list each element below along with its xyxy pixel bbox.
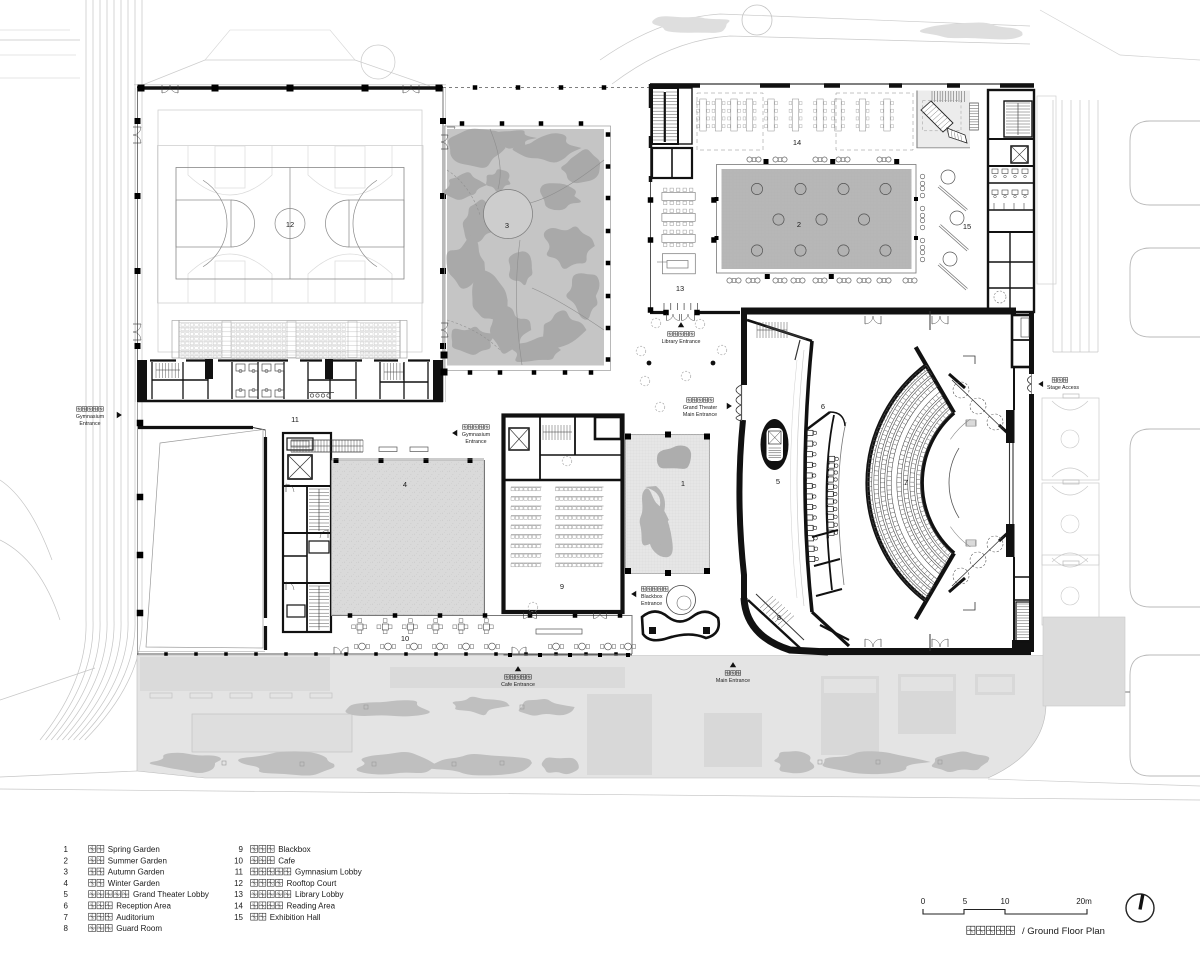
svg-text:13: 13 [234, 890, 243, 899]
svg-text:Gymnasium Lobby: Gymnasium Lobby [295, 868, 362, 877]
svg-text:6: 6 [64, 902, 69, 911]
svg-text:11: 11 [291, 415, 299, 424]
svg-text:Library Entrance: Library Entrance [662, 339, 701, 345]
svg-text:4: 4 [64, 879, 69, 888]
svg-text:Autumn Garden: Autumn Garden [108, 868, 164, 877]
svg-text:Entrance: Entrance [465, 439, 486, 445]
svg-text:14: 14 [793, 138, 801, 147]
svg-text:Main Entrance: Main Entrance [683, 412, 717, 418]
svg-text:Exhibition Hall: Exhibition Hall [270, 913, 321, 922]
svg-text:7: 7 [904, 478, 908, 487]
svg-text:Blackbox: Blackbox [278, 845, 310, 854]
svg-text:10: 10 [1001, 897, 1010, 906]
svg-text:/ Ground Floor Plan: / Ground Floor Plan [1022, 926, 1105, 937]
svg-text:10: 10 [401, 634, 409, 643]
svg-text:Entrance: Entrance [79, 421, 100, 427]
svg-text:Guard Room: Guard Room [116, 924, 162, 933]
svg-text:11: 11 [235, 868, 244, 877]
svg-text:Spring Garden: Spring Garden [108, 845, 160, 854]
svg-text:Auditorium: Auditorium [116, 913, 155, 922]
svg-text:2: 2 [64, 856, 69, 865]
svg-text:6: 6 [821, 402, 825, 411]
svg-text:3: 3 [505, 221, 509, 230]
svg-text:8: 8 [64, 924, 69, 933]
svg-text:Library Lobby: Library Lobby [295, 890, 343, 899]
svg-text:1: 1 [681, 479, 685, 488]
svg-text:Gymnasium: Gymnasium [462, 432, 491, 438]
svg-text:4: 4 [403, 480, 407, 489]
svg-text:Rooftop Court: Rooftop Court [287, 879, 338, 888]
svg-text:15: 15 [234, 913, 243, 922]
svg-text:15: 15 [963, 222, 971, 231]
svg-text:Winter Garden: Winter Garden [108, 879, 160, 888]
svg-text:0: 0 [921, 897, 926, 906]
svg-text:1: 1 [64, 845, 69, 854]
svg-text:12: 12 [286, 220, 294, 229]
svg-text:5: 5 [963, 897, 968, 906]
svg-text:Grand Theater Lobby: Grand Theater Lobby [133, 890, 209, 899]
svg-text:9: 9 [239, 845, 244, 854]
svg-text:Blackbox: Blackbox [641, 594, 663, 600]
svg-text:12: 12 [234, 879, 243, 888]
svg-text:10: 10 [234, 856, 243, 865]
svg-text:Grand Theater: Grand Theater [683, 405, 718, 411]
svg-text:2: 2 [797, 220, 801, 229]
svg-text:14: 14 [234, 902, 243, 911]
svg-text:Cafe Entrance: Cafe Entrance [501, 682, 535, 688]
svg-text:Summer Garden: Summer Garden [108, 856, 167, 865]
svg-text:Gymnasium: Gymnasium [76, 414, 105, 420]
svg-text:20m: 20m [1076, 897, 1092, 906]
svg-text:7: 7 [64, 913, 69, 922]
svg-text:Stage Access: Stage Access [1047, 385, 1079, 391]
svg-text:Cafe: Cafe [278, 856, 295, 865]
svg-text:9: 9 [560, 582, 564, 591]
svg-text:Reading Area: Reading Area [287, 902, 336, 911]
svg-text:Reception Area: Reception Area [116, 902, 171, 911]
svg-text:13: 13 [676, 284, 684, 293]
svg-text:Entrance: Entrance [641, 601, 662, 607]
svg-text:5: 5 [776, 477, 780, 486]
svg-text:3: 3 [64, 868, 69, 877]
svg-text:Main Entrance: Main Entrance [716, 678, 750, 684]
svg-text:5: 5 [64, 890, 69, 899]
